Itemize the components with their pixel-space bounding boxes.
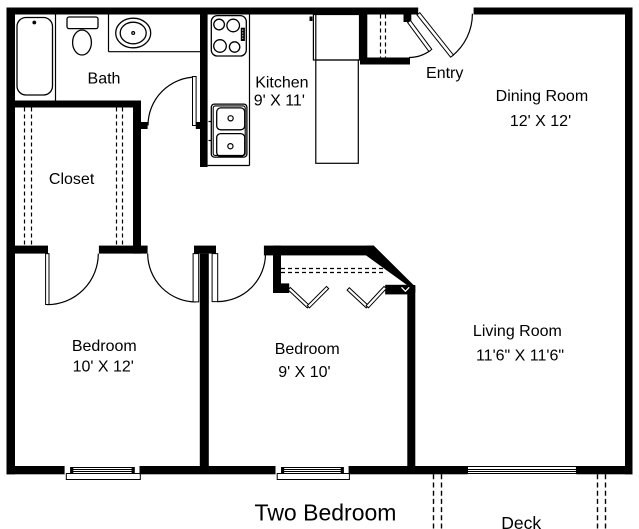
svg-text:Closet: Closet [49,171,95,188]
svg-text:Kitchen: Kitchen [255,75,308,92]
svg-text:Two Bedroom: Two Bedroom [255,499,397,525]
svg-text:Dining Room: Dining Room [496,88,588,105]
svg-text:10' X 12': 10' X 12' [73,359,134,376]
svg-text:9' X 11': 9' X 11' [254,93,305,110]
svg-text:Entry: Entry [426,65,463,82]
svg-text:11'6" X 11'6": 11'6" X 11'6" [476,348,564,365]
svg-text:Bath: Bath [88,70,121,87]
svg-text:9' X 10': 9' X 10' [278,364,330,381]
svg-text:Bedroom: Bedroom [72,338,137,355]
svg-text:Deck: Deck [501,513,541,529]
svg-text:Bedroom: Bedroom [275,341,340,358]
svg-text:Living Room: Living Room [473,323,562,340]
svg-text:12' X 12': 12' X 12' [510,113,571,130]
